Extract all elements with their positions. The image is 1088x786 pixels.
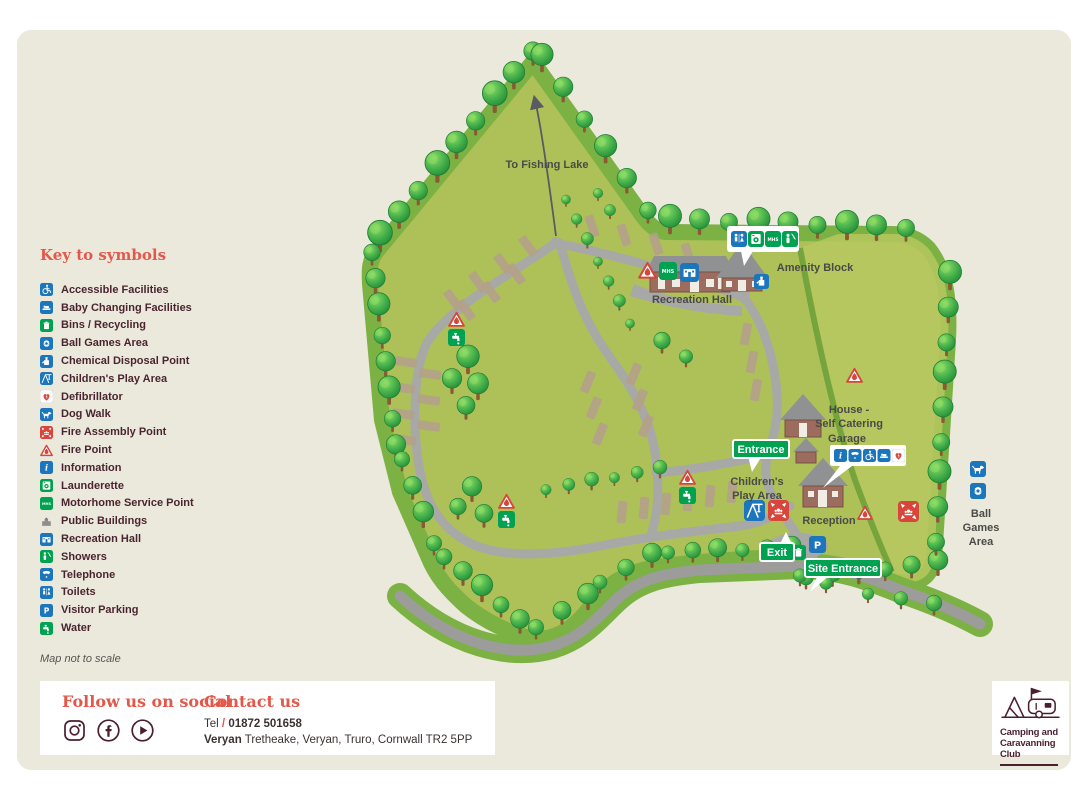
legend-item-chemical: Chemical Disposal Point: [40, 352, 250, 370]
defibrillator-icon: [40, 390, 53, 403]
legend-item-baby: Baby Changing Facilities: [40, 299, 250, 317]
reception-label: Reception: [802, 515, 855, 527]
ballgames-icon: [970, 483, 986, 499]
dogwalk-icon: [970, 461, 986, 477]
launderette-icon: [40, 479, 53, 492]
phone-line: Tel / 01872 501658: [204, 718, 472, 730]
showers-icon: [782, 231, 798, 247]
legend-item-launderette: Launderette: [40, 477, 250, 495]
contact-block: Contact us Tel / 01872 501658 Veryan Tre…: [204, 692, 472, 746]
legend-item-firepoint: Fire Point: [40, 441, 250, 459]
legend-title: Key to symbols: [40, 246, 250, 264]
legend-item-telephone: Telephone: [40, 566, 250, 584]
amenity-block-label: Amenity Block: [777, 262, 854, 274]
legend-item-info: Information: [40, 459, 250, 477]
legend: Key to symbols Accessible Facilities Bab…: [40, 246, 250, 665]
legend-item-accessible: Accessible Facilities: [40, 281, 250, 299]
road-junction: [550, 237, 562, 249]
toilets-icon: [731, 231, 747, 247]
water-icon: [498, 511, 515, 528]
fire-point-icon: [40, 444, 53, 457]
water-icon: [40, 622, 53, 635]
logo-rule: [1000, 764, 1058, 766]
pitch: [617, 501, 628, 524]
dog-walk-icon: [40, 408, 53, 421]
legend-item-parking: Visitor Parking: [40, 601, 250, 619]
information-icon: [40, 461, 53, 474]
fireassembly-icon: [768, 500, 789, 521]
house-label-1: House -: [829, 404, 870, 416]
legend-item-showers: Showers: [40, 548, 250, 566]
baby-icon: [878, 449, 891, 462]
toilets-icon: [40, 586, 53, 599]
telephone-icon: [40, 568, 53, 581]
public-buildings-icon: [40, 515, 53, 528]
legend-item-ballgames: Ball Games Area: [40, 334, 250, 352]
motorhome-service-icon: [40, 497, 53, 510]
house-label-2: Self Catering: [815, 418, 883, 430]
parking-icon: [809, 536, 826, 553]
mhs-icon: [659, 262, 677, 280]
play-area-label-1: Children's: [730, 476, 783, 488]
tree-icon: [894, 592, 908, 610]
chemical-disposal-icon: [40, 355, 53, 368]
water-icon: [679, 487, 696, 504]
legend-item-fireassembly: Fire Assembly Point: [40, 423, 250, 441]
facebook-icon[interactable]: [96, 718, 121, 743]
legend-item-rechall: Recreation Hall: [40, 530, 250, 548]
showers-icon: [40, 550, 53, 563]
info-icon: [834, 449, 847, 462]
legend-item-play: Children's Play Area: [40, 370, 250, 388]
ball-games-icon: [40, 337, 53, 350]
accessible-icon: [863, 449, 876, 462]
recreation-hall-label: Recreation Hall: [652, 294, 732, 306]
phone-number: 01872 501658: [228, 718, 302, 730]
rechall-icon: [680, 263, 699, 282]
contact-title: Contact us: [204, 692, 472, 711]
club-logo: Camping and Caravanning Club: [992, 681, 1069, 755]
visitor-parking-icon: [40, 604, 53, 617]
telephone-icon: [849, 449, 862, 462]
svg-text:Entrance: Entrance: [737, 444, 784, 456]
ball-games-label-3: Area: [969, 536, 994, 548]
youtube-icon[interactable]: [130, 718, 155, 743]
baby-changing-icon: [40, 301, 53, 314]
garage-label: Garage: [828, 433, 866, 445]
ball-games-label-1: Ball: [971, 508, 991, 520]
recreation-hall-icon: [40, 533, 53, 546]
legend-item-water: Water: [40, 619, 250, 637]
play-area-label-2: Play Area: [732, 490, 783, 502]
legend-item-dogwalk: Dog Walk: [40, 406, 250, 424]
water-icon: [448, 329, 465, 346]
play-icon: [744, 500, 765, 521]
legend-list: Accessible Facilities Baby Changing Faci…: [40, 281, 250, 637]
site-name: Veryan: [204, 734, 242, 746]
svg-text:Site Entrance: Site Entrance: [808, 563, 878, 575]
footer-panel: Follow us on social Contact us Tel / 018…: [40, 681, 495, 755]
instagram-icon[interactable]: [62, 718, 87, 743]
club-logo-mark: [1000, 686, 1061, 722]
map-not-to-scale-note: Map not to scale: [40, 653, 250, 665]
tree-icon: [862, 588, 874, 603]
legend-item-mhs: Motorhome Service Point: [40, 495, 250, 513]
fishing-lake-label: To Fishing Lake: [506, 159, 589, 171]
fireassembly-icon: [898, 501, 919, 522]
pitch: [661, 493, 672, 516]
chemical-icon: [754, 274, 769, 289]
fire-assembly-icon: [40, 426, 53, 439]
mhs-icon: [765, 231, 781, 247]
legend-item-toilets: Toilets: [40, 584, 250, 602]
defib-icon: [892, 449, 905, 462]
club-logo-text: Camping and Caravanning Club: [1000, 727, 1061, 761]
accessible-icon: [40, 283, 53, 296]
bins-icon: [40, 319, 53, 332]
launderette-icon: [748, 231, 764, 247]
legend-item-bins: Bins / Recycling: [40, 317, 250, 335]
address-line: Veryan Tretheake, Veryan, Truro, Cornwal…: [204, 734, 472, 746]
svg-text:Exit: Exit: [767, 547, 788, 559]
pitch: [639, 497, 650, 520]
ball-games-label-2: Games: [963, 522, 1000, 534]
play-area-icon: [40, 372, 53, 385]
legend-item-public: Public Buildings: [40, 512, 250, 530]
pitch: [705, 485, 716, 508]
legend-item-defib: Defibrillator: [40, 388, 250, 406]
